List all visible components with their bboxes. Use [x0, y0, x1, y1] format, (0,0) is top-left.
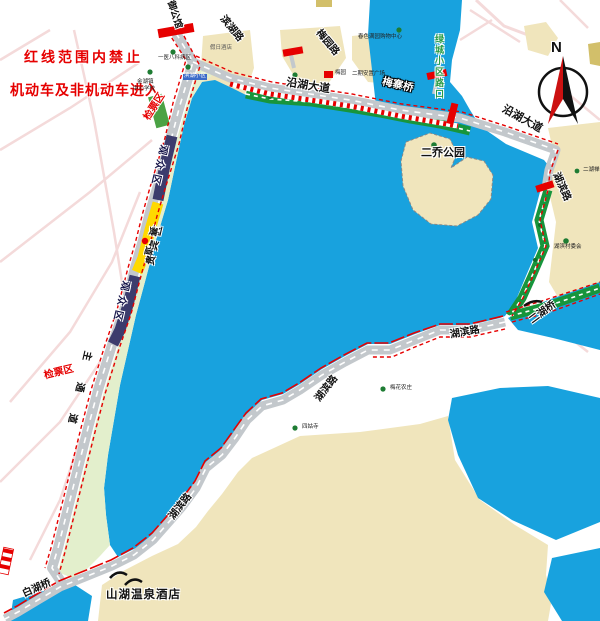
place-label-hotel: 山湖温泉酒店 — [106, 590, 181, 602]
poi-temple-right: 二湖禅寺 — [583, 168, 600, 174]
poi-holiday-hotel: 假日酒店 — [210, 46, 232, 52]
poi-village: 湖滨村委会 — [554, 245, 582, 251]
poi-community-badge: 滨湖小区 — [183, 74, 207, 80]
poi-mall: 春色满园购物中心 — [358, 35, 402, 41]
place-label-erqiao-park: 二乔公园 — [421, 148, 465, 159]
poi-temple-south: 四姑寺 — [302, 425, 319, 431]
road-label-lvcheng-entrance: 绿城小区路口 — [434, 34, 443, 100]
poi-school-line2: 中心学校 — [133, 87, 155, 93]
corner-water — [544, 548, 600, 621]
notice-line-1: 红线范围内禁止 — [24, 50, 143, 64]
meiyuan-marker — [324, 71, 333, 78]
poi-school-line1: 金湖镇 — [137, 80, 154, 86]
poi-plaza: 二期安置广场 — [352, 72, 385, 78]
compass-icon — [539, 56, 587, 124]
striped-barrier — [0, 547, 14, 575]
poi-meiyuan: 梅园 — [335, 71, 346, 77]
poi-hospital: 一医八科病区 — [158, 56, 191, 62]
compass-north-label: N — [551, 40, 562, 55]
map-canvas: 红线范围内禁止 机动车及非机动车进入 N 御公馆 滨湖路 梅园路 绿城小区路口 … — [0, 0, 600, 621]
poi-farm: 梅花农庄 — [390, 386, 412, 392]
